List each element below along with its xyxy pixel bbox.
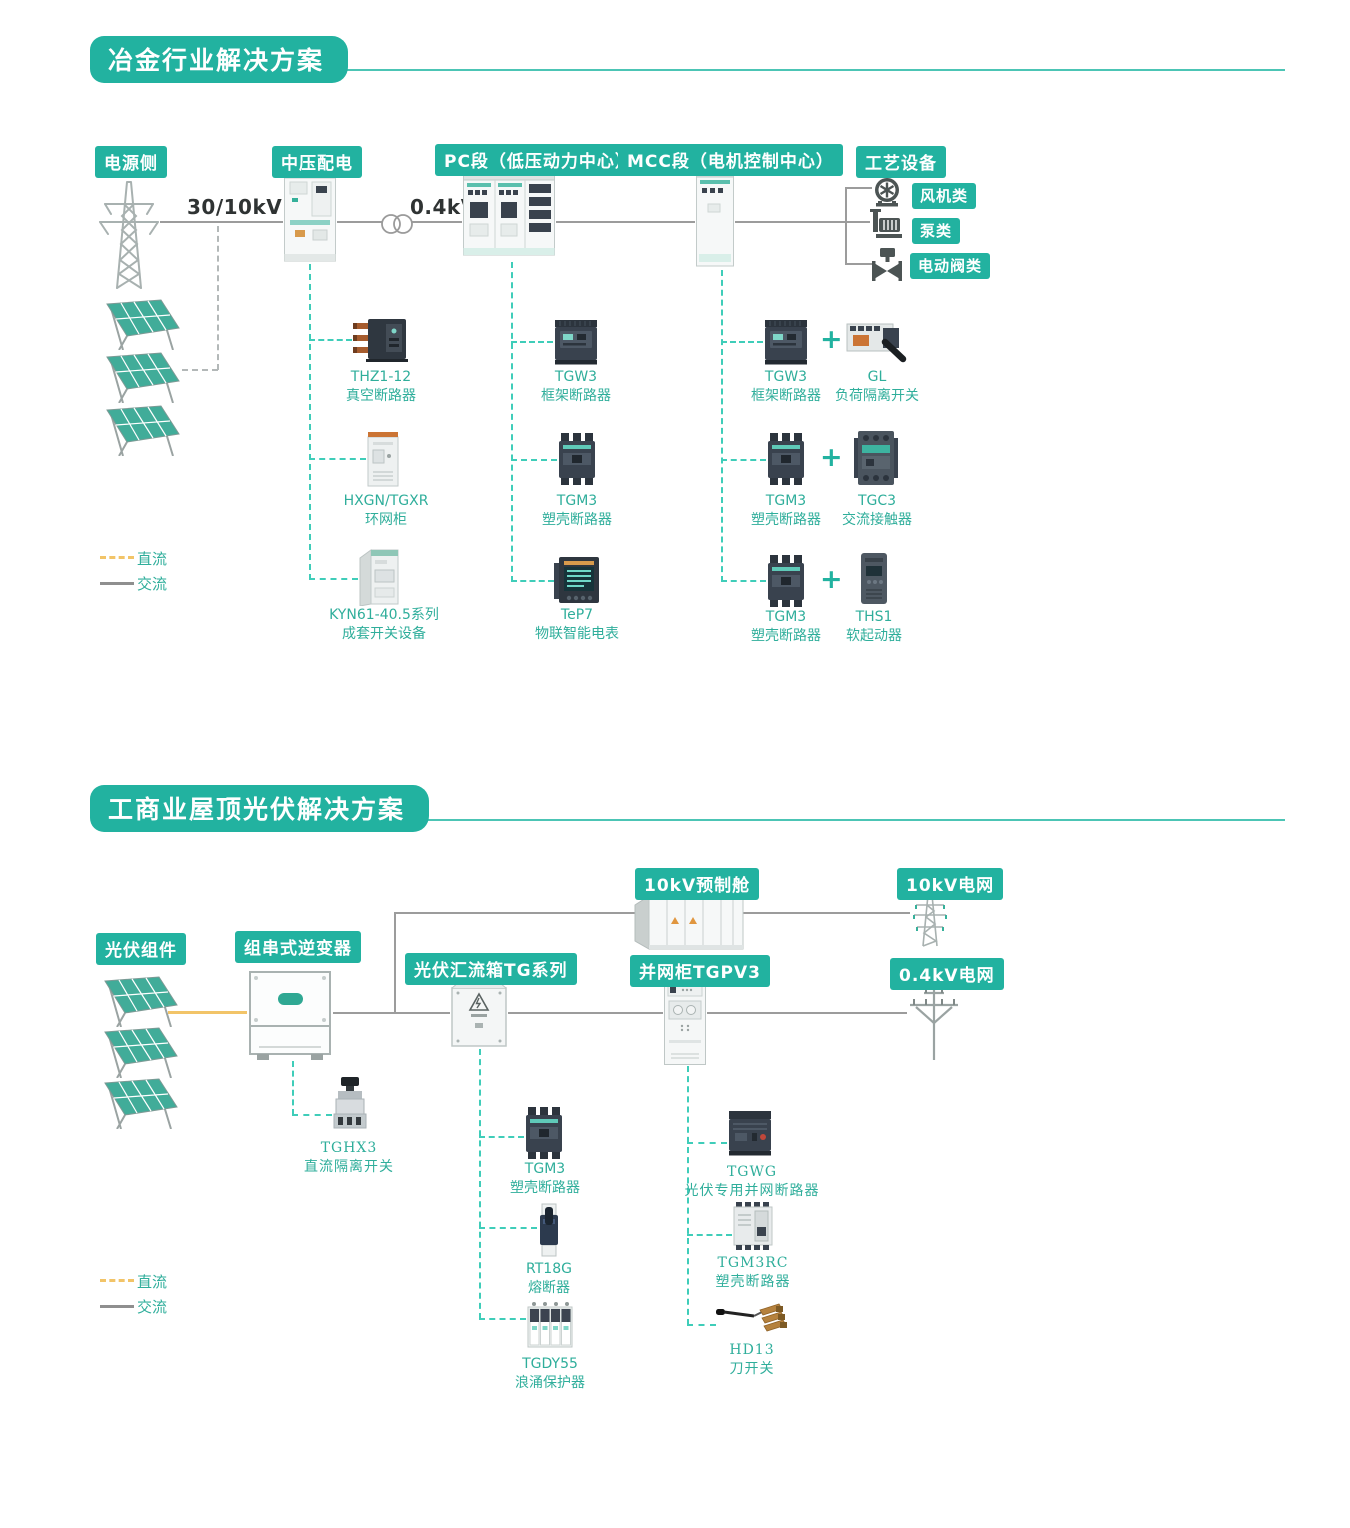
section2-title: 工商业屋顶光伏解决方案 [90,785,429,832]
pc-product-stub [511,341,553,343]
product-label: TGW3 框架断路器 [751,368,821,406]
pc-product-stub [511,580,554,582]
ac-line-segment [394,912,636,914]
product-label: TGHX3 直流隔离开关 [304,1139,394,1177]
inverter-product-stub [292,1114,332,1116]
product-name: 框架断路器 [751,387,821,406]
tgm3rc-breaker-image [732,1201,774,1251]
grid-cabinet-image [663,980,707,1066]
legend-dc-label: 直流 [137,1271,167,1292]
process-bracket-arm [845,263,872,265]
stage-grid-cabinet: 并网柜TGPV3 [630,955,770,987]
ac-line-segment [333,1012,450,1014]
product-name: 浪涌保护器 [515,1374,585,1393]
stage-mv-dist: 中压配电 [272,146,362,178]
product-name: 熔断器 [526,1279,572,1298]
hxgn-rmu-image [366,430,400,488]
product-model: KYN61-40.5系列 [329,606,439,625]
ac-line-segment [707,1012,907,1014]
section1-divider [300,69,1285,71]
product-model: TGM3 [510,1160,580,1179]
legend-ac-line [100,582,134,585]
product-model: TGM3 [751,608,821,627]
stage-mcc-section: MCC段（电机控制中心） [618,144,843,176]
product-label: TGW3 框架断路器 [541,368,611,406]
legend-ac-line [100,1305,134,1308]
section1-title: 冶金行业解决方案 [90,36,348,83]
stage-pv-modules: 光伏组件 [96,933,186,965]
tgdy55-spd-image [526,1299,574,1353]
product-model: TGW3 [751,368,821,387]
mcc-product-stub [721,459,766,461]
ac-line-segment [732,912,910,914]
product-model: TGDY55 [515,1355,585,1374]
legend-ac-label: 交流 [137,1296,167,1317]
mcc-product-trunk [721,270,723,582]
product-model: TGC3 [842,492,912,511]
product-name: 塑壳断路器 [510,1179,580,1198]
process-label-valves: 电动阀类 [910,253,990,279]
pc-cabinet-image [462,172,556,262]
process-label-pumps: 泵类 [912,218,960,244]
plus-sign: + [820,444,843,471]
mv-product-trunk [309,264,311,580]
product-label: THZ1-12 真空断路器 [346,368,416,406]
product-name: 光伏专用并网断路器 [685,1182,820,1201]
process-label-fans: 风机类 [912,183,976,209]
stage-grid-10kv: 10kV电网 [897,868,1003,900]
solar-panel-icon [97,404,182,456]
product-label: TGM3 塑壳断路器 [751,608,821,646]
product-name: 负荷隔离开关 [835,387,919,406]
combiner-product-stub [479,1227,537,1229]
product-name: 塑壳断路器 [542,511,612,530]
mv-product-stub [309,339,352,341]
ac-line-segment [411,221,462,223]
stage-process-equipment: 工艺设备 [856,146,946,178]
grid-product-stub [687,1142,727,1144]
product-label: TGM3 塑壳断路器 [751,492,821,530]
thz1-12-breaker-image [352,318,408,362]
product-label: TeP7 物联智能电表 [535,606,619,644]
tep7-meter-image [554,556,600,606]
legend-dc-label: 直流 [137,548,167,569]
product-label: KYN61-40.5系列 成套开关设备 [329,606,439,644]
solar-panel-icon [95,1077,180,1129]
ac-line-segment [160,221,283,223]
ths1-softstarter-image [859,552,889,606]
product-label: TGM3RC 塑壳断路器 [716,1254,791,1292]
tgm3-breaker-image [766,432,806,486]
product-name: 交流接触器 [842,511,912,530]
gl-switch-image [845,320,907,364]
product-name: 框架断路器 [541,387,611,406]
product-name: 塑壳断路器 [716,1273,791,1292]
product-label: THS1 软起动器 [846,608,902,646]
transmission-tower-icon [93,170,165,290]
combiner-product-trunk [479,1049,481,1319]
plus-sign: + [820,566,843,593]
voltage-30-10kv: 30/10kV [187,195,282,219]
pv-feed-dash-line [182,369,218,371]
product-label: RT18G 熔断器 [526,1260,572,1298]
ac-line-segment [735,221,870,223]
tgwg-breaker-image [727,1109,773,1157]
string-inverter-image [247,969,333,1061]
tgm3-breaker-image [557,432,597,486]
mcc-cabinet-image [695,170,735,270]
product-name: 成套开关设备 [329,625,439,644]
grid-product-stub [687,1234,732,1236]
product-label: TGWG 光伏专用并网断路器 [685,1163,820,1201]
product-model: TGWG [685,1163,820,1182]
product-model: HXGN/TGXR [344,492,429,511]
product-label: GL 负荷隔离开关 [835,368,919,406]
product-label: TGM3 塑壳断路器 [510,1160,580,1198]
solution-diagram-page: 冶金行业解决方案 电源侧 中压配电 PC段（低压动力中心） MCC段（电机控制中… [0,0,1350,1528]
stage-grid-0-4kv: 0.4kV电网 [890,958,1004,990]
ac-branch-line [394,913,396,1013]
grid-product-stub [687,1324,716,1326]
stage-combiner-box: 光伏汇流箱TG系列 [405,953,577,985]
product-model: HD13 [729,1341,774,1360]
mv-switchgear-image [283,172,337,264]
product-model: TGHX3 [304,1139,394,1158]
solar-panel-icon [95,975,180,1027]
combiner-product-stub [479,1136,524,1138]
product-name: 直流隔离开关 [304,1158,394,1177]
product-label: HD13 刀开关 [729,1341,774,1379]
product-model: TGM3RC [716,1254,791,1273]
hd13-knife-switch-image [716,1303,788,1339]
stage-power-side: 电源侧 [95,146,167,178]
tgw3-breaker-image [553,318,599,366]
solar-panel-icon [97,351,182,403]
product-model: GL [835,368,919,387]
combiner-box-image [450,981,508,1049]
product-name: 环网柜 [344,511,429,530]
product-label: HXGN/TGXR 环网柜 [344,492,429,530]
legend-dc-line [100,1279,134,1282]
mcc-product-stub [721,341,763,343]
prefab-station-image [633,891,745,951]
product-model: THZ1-12 [346,368,416,387]
product-model: THS1 [846,608,902,627]
product-label: TGDY55 浪涌保护器 [515,1355,585,1393]
ac-line-segment [556,221,695,223]
pc-product-stub [511,459,557,461]
tghx3-dc-switch-image [332,1076,368,1132]
tgm3-breaker-image [766,554,806,608]
section2-divider [380,819,1285,821]
tgw3-breaker-image [763,318,809,366]
product-label: TGM3 塑壳断路器 [542,492,612,530]
pump-icon [869,208,903,240]
kyn61-switchgear-image [358,546,400,606]
tgm3-breaker-image [524,1106,564,1160]
solar-panel-icon [95,1026,180,1078]
product-model: RT18G [526,1260,572,1279]
mv-product-stub [309,578,358,580]
plus-sign: + [820,326,843,353]
product-name: 真空断路器 [346,387,416,406]
process-bracket-line [845,187,847,265]
product-name: 刀开关 [729,1360,774,1379]
product-model: TGW3 [541,368,611,387]
legend-ac-label: 交流 [137,573,167,594]
fan-icon [873,175,901,209]
rt18g-fuse-image [537,1203,561,1257]
product-name: 塑壳断路器 [751,511,821,530]
ac-line-segment [508,1012,663,1014]
product-label: TGC3 交流接触器 [842,492,912,530]
combiner-product-stub [479,1318,526,1320]
product-name: 物联智能电表 [535,625,619,644]
stage-string-inverter: 组串式逆变器 [235,931,361,963]
valve-icon [872,247,902,283]
product-model: TeP7 [535,606,619,625]
solar-panel-icon [97,298,182,350]
legend-dc-line [100,556,134,559]
product-name: 软起动器 [846,627,902,646]
mcc-product-stub [721,580,766,582]
product-name: 塑壳断路器 [751,627,821,646]
product-model: TGM3 [751,492,821,511]
pv-feed-dash-line [217,226,219,370]
utility-pole-icon [908,983,960,1061]
tgc3-contactor-image [853,430,899,486]
inverter-product-trunk [292,1061,294,1115]
stage-prefab-station: 10kV预制舱 [635,868,759,900]
transformer-icon [380,213,414,235]
ac-line-segment [337,221,382,223]
stage-pc-section: PC段（低压动力中心） [435,144,642,176]
product-model: TGM3 [542,492,612,511]
mv-product-stub [309,458,366,460]
process-bracket-arm [845,187,872,189]
pc-product-trunk [511,262,513,582]
